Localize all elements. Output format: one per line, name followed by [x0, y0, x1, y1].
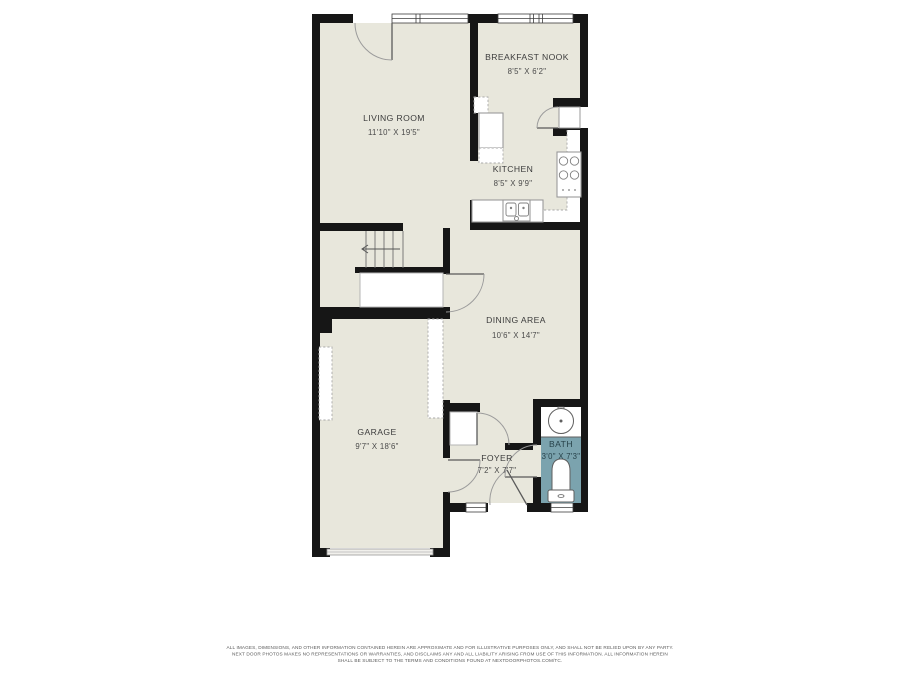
- front-sidelight-window: [466, 503, 486, 512]
- bath-window: [551, 503, 573, 512]
- kitchen-sink-icon: [472, 200, 543, 222]
- disclaimer-line-2: NEXT DOOR PHOTOS MAKES NO REPRESENTATION…: [232, 652, 668, 657]
- disclaimer-line-1: ALL IMAGES, DIMENSIONS, AND OTHER INFORM…: [227, 645, 674, 650]
- room-dims-living-room: 11'10" X 19'5": [368, 128, 420, 137]
- room-dims-dining-area: 10'6" X 14'7": [492, 331, 540, 340]
- stove-icon: [557, 152, 581, 197]
- room-label-foyer: FOYER: [481, 453, 513, 463]
- breakfast-nook-window: [498, 14, 573, 23]
- room-label-garage: GARAGE: [357, 427, 396, 437]
- garage-door: [327, 549, 433, 555]
- room-dims-breakfast-nook: 8'5" X 6'2": [508, 67, 547, 76]
- room-dims-bath: 3'0" X 7'3": [542, 452, 581, 461]
- room-label-bath: BATH: [549, 439, 573, 449]
- disclaimer-line-3: SHALL BE SUBJECT TO THE TERMS AND CONDIT…: [338, 658, 563, 663]
- floor-plan-svg: LIVING ROOM 11'10" X 19'5" BREAKFAST NOO…: [0, 0, 900, 675]
- foyer-closet: [450, 412, 477, 445]
- room-label-breakfast-nook: BREAKFAST NOOK: [485, 52, 569, 62]
- room-label-living-room: LIVING ROOM: [363, 113, 425, 123]
- room-dims-foyer: 7'2" X 7'7": [478, 466, 517, 475]
- living-room-window: [392, 14, 468, 23]
- floor-plan-page: LIVING ROOM 11'10" X 19'5" BREAKFAST NOO…: [0, 0, 900, 675]
- room-label-dining-area: DINING AREA: [486, 315, 546, 325]
- room-dims-kitchen: 8'5" X 9'9": [494, 179, 533, 188]
- room-label-kitchen: KITCHEN: [493, 164, 534, 174]
- understair-closet: [360, 273, 443, 307]
- side-door-panel: [559, 107, 580, 128]
- room-dims-garage: 9'7" X 18'6": [355, 442, 398, 451]
